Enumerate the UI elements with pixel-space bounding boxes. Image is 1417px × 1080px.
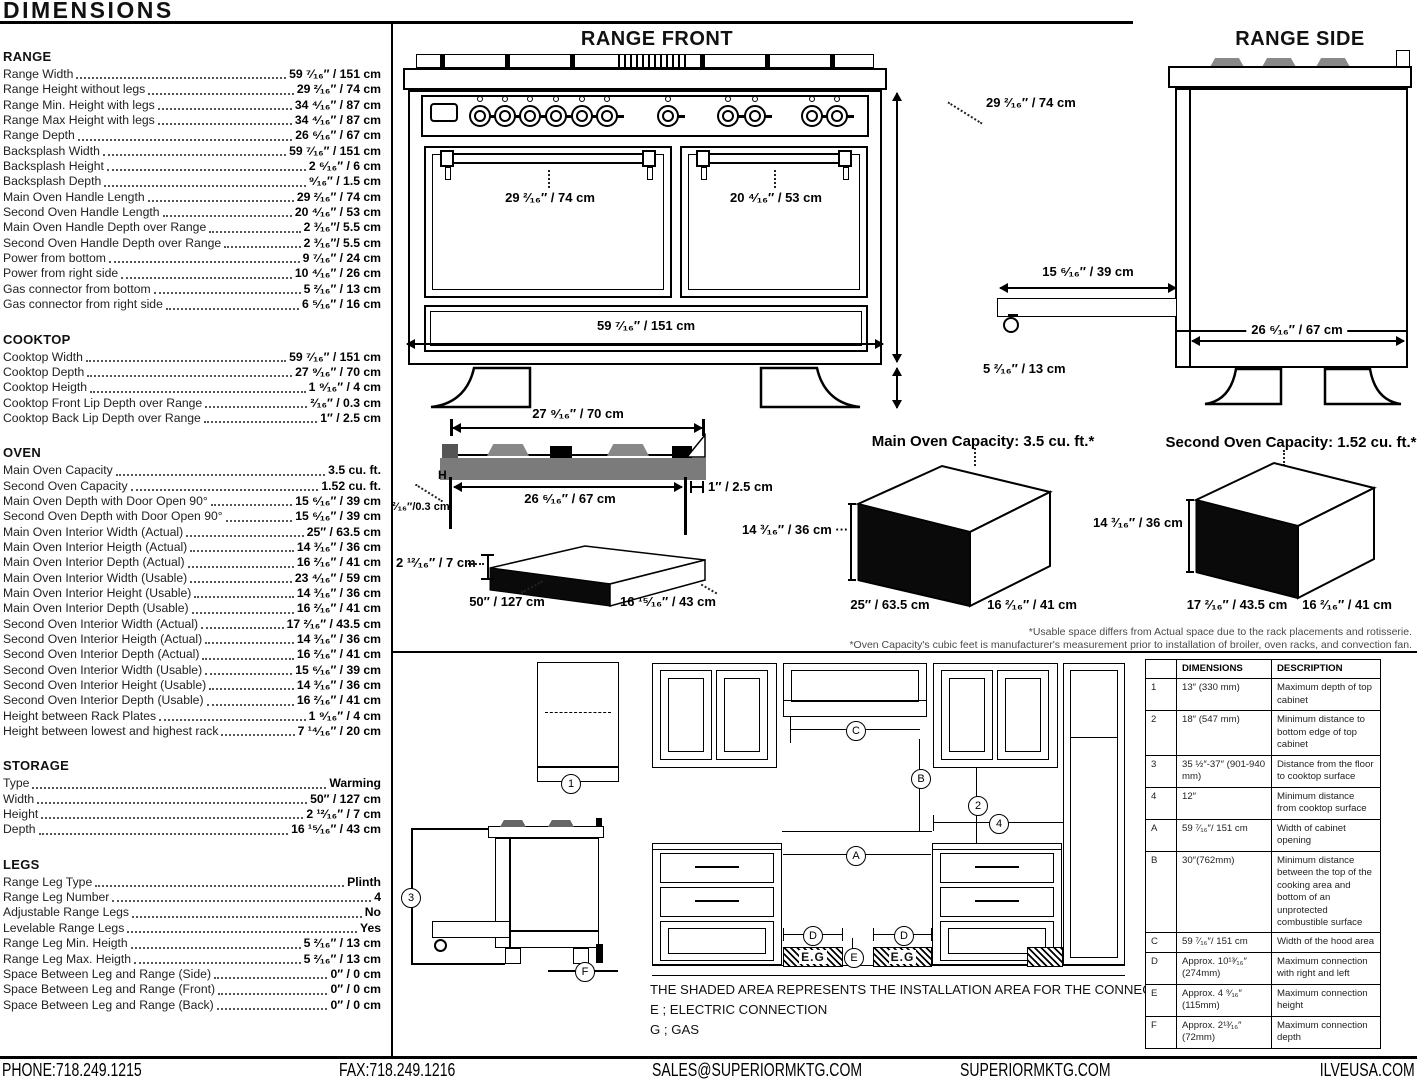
range-height-arrow: [896, 93, 898, 362]
caster-wheel: [434, 939, 447, 952]
spec-value: 1″ / 2.5 cm: [320, 411, 381, 426]
dot-leader: [188, 566, 294, 568]
spec-value: No: [365, 905, 381, 920]
spec-label: Height between Rack Plates: [3, 709, 156, 724]
spec-row: Cooktop Heigth 1 ⁹⁄₁₆″ / 4 cm: [3, 380, 381, 395]
spec-row: Range Min. Height with legs 34 ⁴⁄₁₆″ / 8…: [3, 98, 381, 113]
spec-value: 15 ⁶⁄₁₆″ / 39 cm: [295, 663, 381, 678]
spec-value: 14 ³⁄₁₆″ / 36 cm: [297, 586, 381, 601]
spec-value: 6 ⁵⁄₁₆″ / 16 cm: [302, 297, 381, 312]
table-cell-key: C: [1146, 933, 1177, 952]
spec-row: Main Oven Interior Height (Usable) 14 ³⁄…: [3, 586, 381, 601]
table-cell-description: Maximum depth of top cabinet: [1272, 679, 1381, 711]
range-foot: [758, 365, 863, 409]
installation-note-line: E ; ELECTRIC CONNECTION: [650, 1002, 1196, 1017]
second-oven-depth-label: 16 ²⁄₁₆″ / 41 cm: [1302, 597, 1392, 612]
dot-leader: [218, 993, 327, 995]
dot-leader: [107, 169, 306, 171]
drawer-open-arrow: [1000, 287, 1176, 289]
table-cell-dimension: 12″: [1177, 787, 1272, 819]
dot-leader: [190, 581, 292, 583]
footer-ilve-website[interactable]: ILVEUSA.COM: [1320, 1060, 1415, 1080]
spec-row: Gas connector from right side 6 ⁵⁄₁₆″ / …: [3, 297, 381, 312]
spec-label: Second Oven Capacity: [3, 479, 128, 494]
burner-knob: [469, 105, 491, 127]
range-height-label: 29 ²⁄₁₆″ / 74 cm: [986, 95, 1076, 110]
drawer-height-label: 2 ¹²⁄₁₆″ / 7 cm: [396, 555, 476, 570]
footnote-line: *Oven Capacity's cubic feet is manufactu…: [849, 639, 1412, 652]
installation-note-line: G ; GAS: [650, 1022, 1196, 1037]
spec-value: 50″ / 127 cm: [310, 792, 381, 807]
burner-knob: [571, 105, 593, 127]
spec-row: Space Between Leg and Range (Side) 0″ / …: [3, 967, 381, 982]
spec-section: LEGS Range Leg Type Plinth Range Leg Num…: [3, 857, 381, 1013]
cooktop-ledge: [1168, 66, 1412, 88]
spec-value: 16 ²⁄₁₆″ / 41 cm: [297, 555, 381, 570]
spec-value: 2 ³⁄₁₆″/ 5.5 cm: [304, 220, 381, 235]
spec-row: Main Oven Interior Depth (Actual) 16 ²⁄₁…: [3, 555, 381, 570]
spec-label: Range Max Height with legs: [3, 113, 155, 128]
spec-value: 2 ³⁄₁₆″/ 5.5 cm: [304, 236, 381, 251]
spec-row: Second Oven Depth with Door Open 90° 15 …: [3, 509, 381, 524]
dot-leader: [95, 885, 344, 887]
burner-cap: [607, 444, 649, 456]
table-cell-dimension: 13″ (330 mm): [1177, 679, 1272, 711]
dot-leader: [202, 658, 293, 660]
oven-knob: [826, 105, 848, 127]
spec-value: ⁹⁄₁₆″ / 1.5 cm: [309, 174, 381, 189]
spec-value: 14 ³⁄₁₆″ / 36 cm: [297, 540, 381, 555]
spec-label: Second Oven Interior Width (Usable): [3, 663, 202, 678]
spec-section-heading: LEGS: [3, 857, 381, 872]
dot-leader: [192, 612, 294, 614]
table-header-description: DESCRIPTION: [1272, 660, 1381, 679]
spec-value: 0″ / 0 cm: [330, 982, 381, 997]
spec-row: Height between Rack Plates 1 ⁹⁄₁₆″ / 4 c…: [3, 709, 381, 724]
spec-label: Range Leg Max. Heigth: [3, 952, 131, 967]
spec-label: Main Oven Capacity: [3, 463, 113, 478]
dot-leader: [37, 802, 307, 804]
table-cell-key: B: [1146, 851, 1177, 933]
table-cell-key: E: [1146, 984, 1177, 1016]
spec-row: Backsplash Height 2 ⁶⁄₁₆″ / 6 cm: [3, 159, 381, 174]
spec-value: 16 ²⁄₁₆″ / 41 cm: [297, 601, 381, 616]
table-row: F Approx. 2¹³⁄₁₆″ (72mm) Maximum connect…: [1146, 1016, 1381, 1048]
h-mark: H: [438, 468, 447, 482]
table-cell-description: Maximum connection depth: [1272, 1016, 1381, 1048]
spec-label: Cooktop Heigth: [3, 380, 87, 395]
dot-leader: [116, 474, 325, 476]
table-cell-dimension: Approx. 10¹³⁄₁₆″ (274mm): [1177, 952, 1272, 984]
spec-row: Adjustable Range Legs No: [3, 905, 381, 920]
spec-section: OVEN Main Oven Capacity 3.5 cu. ft. Seco…: [3, 445, 381, 739]
dot-leader: [224, 246, 300, 248]
spec-row: Backsplash Depth ⁹⁄₁₆″ / 1.5 cm: [3, 174, 381, 189]
spec-row: Range Depth 26 ⁶⁄₁₆″ / 67 cm: [3, 128, 381, 143]
second-oven-width-label: 17 ²⁄₁₆″ / 43.5 cm: [1187, 597, 1288, 612]
spec-value: ²⁄₁₆″ / 0.3 cm: [310, 396, 381, 411]
dot-leader: [78, 139, 292, 141]
dot-leader: [103, 154, 286, 156]
spec-row: Backsplash Width 59 ⁷⁄₁₆″ / 151 cm: [3, 144, 381, 159]
table-cell-dimension: 59 ⁷⁄₁₆″/ 151 cm: [1177, 933, 1272, 952]
spec-row: Main Oven Interior Depth (Usable) 16 ²⁄₁…: [3, 601, 381, 616]
dot-leader: [87, 375, 292, 377]
table-cell-dimension: 35 ½″-37″ (901-940 mm): [1177, 755, 1272, 787]
callout-D: D: [803, 926, 823, 946]
leg-height-label: 5 ²⁄₁₆″ / 13 cm: [983, 361, 1066, 376]
spec-section: STORAGE Type Warming Width 50″ / 12: [3, 758, 381, 837]
range-width-arrow: [407, 343, 883, 345]
display-panel: [430, 103, 458, 122]
table-cell-key: 3: [1146, 755, 1177, 787]
spec-row: Height 2 ¹²⁄₁₆″ / 7 cm: [3, 807, 381, 822]
spec-row: Range Leg Number 4: [3, 890, 381, 905]
spec-value: 7 ¹⁴⁄₁₆″ / 20 cm: [298, 724, 381, 739]
footer-fax: FAX:718.249.1216: [339, 1060, 455, 1080]
spec-row: Second Oven Interior Width (Usable) 15 ⁶…: [3, 663, 381, 678]
dot-leader: [221, 734, 294, 736]
spec-row: Range Leg Min. Heigth 5 ²⁄₁₆″ / 13 cm: [3, 936, 381, 951]
spec-value: 4: [374, 890, 381, 905]
table-cell-dimension: Approx. 4 ⁹⁄₁₆″ (115mm): [1177, 984, 1272, 1016]
table-cell-key: 1: [1146, 679, 1177, 711]
spec-label: Backsplash Width: [3, 144, 100, 159]
main-oven-depth-label: 16 ²⁄₁₆″ / 41 cm: [987, 597, 1077, 612]
spec-label: Range Width: [3, 67, 73, 82]
table-row: 1 13″ (330 mm) Maximum depth of top cabi…: [1146, 679, 1381, 711]
spec-row: Second Oven Interior Depth (Actual) 16 ²…: [3, 647, 381, 662]
spec-value: Yes: [360, 921, 381, 936]
table-cell-description: Width of the hood area: [1272, 933, 1381, 952]
dot-leader: [217, 1008, 328, 1010]
spec-value: 1 ⁹⁄₁₆″ / 4 cm: [309, 380, 381, 395]
spec-column: RANGE Range Width 59 ⁷⁄₁₆″ / 151 cm Rang…: [3, 30, 381, 1013]
spec-row: Main Oven Handle Depth over Range 2 ³⁄₁₆…: [3, 220, 381, 235]
dot-leader: [154, 292, 301, 294]
spec-label: Range Leg Min. Heigth: [3, 936, 128, 951]
spec-row: Height between lowest and highest rack 7…: [3, 724, 381, 739]
spec-label: Main Oven Interior Heigth (Actual): [3, 540, 187, 555]
dot-leader: [134, 962, 301, 964]
spec-row: Power from bottom 9 ⁷⁄₁₆″ / 24 cm: [3, 251, 381, 266]
spec-label: Main Oven Depth with Door Open 90°: [3, 494, 208, 509]
spec-section: COOKTOP Cooktop Width 59 ⁷⁄₁₆″ / 151 cm …: [3, 332, 381, 427]
spec-value: 10 ⁴⁄₁₆″ / 26 cm: [295, 266, 381, 281]
spec-label: Second Oven Handle Length: [3, 205, 160, 220]
spec-row: Range Leg Max. Heigth 5 ²⁄₁₆″ / 13 cm: [3, 952, 381, 967]
burner-knob: [494, 105, 516, 127]
dot-leader: [90, 391, 306, 393]
spec-label: Type: [3, 776, 29, 791]
oven-knob: [744, 105, 766, 127]
dimensions-sheet: DIMENSIONS RANGE Range Width 59 ⁷⁄₁₆″ / …: [0, 0, 1417, 1080]
main-handle-length-label: 29 ²⁄₁₆″ / 74 cm: [505, 190, 595, 205]
spec-value: 1 ⁹⁄₁₆″ / 4 cm: [309, 709, 381, 724]
table-header-row: DIMENSIONS DESCRIPTION: [1146, 660, 1381, 679]
spec-label: Height: [3, 807, 38, 822]
spec-label: Backsplash Height: [3, 159, 104, 174]
second-oven-box: [1186, 458, 1381, 600]
dot-leader: [205, 406, 307, 408]
spec-row: Second Oven Interior Width (Actual) 17 ²…: [3, 617, 381, 632]
spec-row: Space Between Leg and Range (Back) 0″ / …: [3, 998, 381, 1013]
range-opening-top: [782, 831, 932, 832]
spec-label: Space Between Leg and Range (Front): [3, 982, 215, 997]
connection-area-side: [1027, 947, 1063, 967]
spec-row: Main Oven Handle Length 29 ²⁄₁₆″ / 74 cm: [3, 190, 381, 205]
spec-label: Second Oven Handle Depth over Range: [3, 236, 221, 251]
table-cell-dimension: 18″ (547 mm): [1177, 711, 1272, 755]
range-width-label: 59 ⁷⁄₁₆″ / 151 cm: [591, 318, 701, 333]
spec-value: 16 ²⁄₁₆″ / 41 cm: [297, 693, 381, 708]
spec-section-heading: OVEN: [3, 445, 381, 460]
spec-row: Cooktop Width 59 ⁷⁄₁₆″ / 151 cm: [3, 350, 381, 365]
spec-label: Second Oven Interior Width (Actual): [3, 617, 198, 632]
spec-label: Main Oven Handle Depth over Range: [3, 220, 206, 235]
vertical-divider: [391, 22, 393, 1057]
second-oven-handle: [702, 153, 846, 164]
oven-knob: [717, 105, 739, 127]
table-cell-key: 2: [1146, 711, 1177, 755]
spec-label: Range Height without legs: [3, 82, 145, 97]
spec-label: Space Between Leg and Range (Side): [3, 967, 211, 982]
callout-4: 4: [989, 814, 1009, 834]
table-cell-key: F: [1146, 1016, 1177, 1048]
table-header-key: [1146, 660, 1177, 679]
table-row: 4 12″ Minimum distance from cooktop surf…: [1146, 787, 1381, 819]
table-cell-description: Width of cabinet opening: [1272, 819, 1381, 851]
spec-label: Power from bottom: [3, 251, 106, 266]
spec-value: Plinth: [347, 875, 381, 890]
spec-value: 59 ⁷⁄₁₆″ / 151 cm: [289, 67, 381, 82]
callout-A: A: [846, 846, 866, 866]
cooktop-slab: [440, 458, 706, 480]
dot-leader: [131, 947, 301, 949]
spec-value: 1.52 cu. ft.: [321, 479, 381, 494]
dot-leader: [205, 642, 294, 644]
dot-leader: [76, 77, 286, 79]
spec-label: Range Depth: [3, 128, 75, 143]
spec-value: 15 ⁶⁄₁₆″ / 39 cm: [295, 494, 381, 509]
table-cell-dimension: 30″(762mm): [1177, 851, 1272, 933]
main-oven-title: Main Oven Capacity: 3.5 cu. ft.*: [872, 433, 1095, 450]
spec-value: 26 ⁶⁄₁₆″ / 67 cm: [295, 128, 381, 143]
dot-leader: [132, 916, 362, 918]
dot-leader: [131, 489, 319, 491]
spec-value: 59 ⁷⁄₁₆″ / 151 cm: [289, 350, 381, 365]
callout-E: E: [844, 948, 864, 968]
spec-value: 3.5 cu. ft.: [328, 463, 381, 478]
spec-section: RANGE Range Width 59 ⁷⁄₁₆″ / 151 cm Rang…: [3, 49, 381, 313]
dot-leader: [112, 900, 371, 902]
burner-knob: [545, 105, 567, 127]
spec-label: Second Oven Interior Depth (Actual): [3, 647, 199, 662]
spec-row: Second Oven Interior Height (Usable) 14 …: [3, 678, 381, 693]
spec-value: 23 ⁴⁄₁₆″ / 59 cm: [295, 571, 381, 586]
griddle-ribs: [618, 55, 690, 67]
table-row: 2 18″ (547 mm) Minimum distance to botto…: [1146, 711, 1381, 755]
spec-row: Main Oven Capacity 3.5 cu. ft.: [3, 463, 381, 478]
range-foot: [1202, 366, 1284, 406]
table-cell-description: Maximum connection with right and left: [1272, 952, 1381, 984]
main-oven-box: [848, 460, 1058, 608]
side-open-drawer: [432, 921, 510, 938]
table-cell-key: D: [1146, 952, 1177, 984]
installation-table: DIMENSIONS DESCRIPTION 1 13″ (330 mm) Ma…: [1145, 659, 1381, 1049]
spec-row: Space Between Leg and Range (Front) 0″ /…: [3, 982, 381, 997]
table-row: C 59 ⁷⁄₁₆″/ 151 cm Width of the hood are…: [1146, 933, 1381, 952]
spec-row: Gas connector from bottom 5 ²⁄₁₆″ / 13 c…: [3, 282, 381, 297]
dot-leader: [214, 977, 327, 979]
spec-label: Width: [3, 792, 34, 807]
spec-label: Second Oven Interior Height (Usable): [3, 678, 206, 693]
spec-label: Levelable Range Legs: [3, 921, 124, 936]
spec-value: 5 ²⁄₁₆″ / 13 cm: [304, 952, 381, 967]
spec-value: 16 ²⁄₁₆″ / 41 cm: [297, 647, 381, 662]
spec-label: Backsplash Depth: [3, 174, 101, 189]
footnote-line: *Usable space differs from Actual space …: [849, 626, 1412, 639]
dot-leader: [39, 833, 289, 835]
dot-leader: [32, 787, 326, 789]
table-row: E Approx. 4 ⁹⁄₁₆″ (115mm) Maximum connec…: [1146, 984, 1381, 1016]
spec-label: Gas connector from right side: [3, 297, 163, 312]
spec-label: Main Oven Interior Width (Actual): [3, 525, 183, 540]
spec-section-heading: COOKTOP: [3, 332, 381, 347]
spec-value: 27 ⁹⁄₁₆″ / 70 cm: [295, 365, 381, 380]
dot-leader: [86, 360, 286, 362]
main-oven-width-label: 25″ / 63.5 cm: [850, 597, 929, 612]
dot-leader: [158, 108, 292, 110]
spec-value: 17 ²⁄₁₆″ / 43.5 cm: [287, 617, 381, 632]
connection-area-label: E.G: [799, 950, 827, 964]
burner-block: [442, 444, 458, 458]
dot-leader: [209, 231, 300, 233]
footer-website[interactable]: SUPERIORMKTG.COM: [960, 1060, 1111, 1080]
spec-row: Cooktop Front Lip Depth over Range ²⁄₁₆″…: [3, 396, 381, 411]
spec-row: Second Oven Interior Depth (Usable) 16 ²…: [3, 693, 381, 708]
spec-value: 2 ¹²⁄₁₆″ / 7 cm: [306, 807, 381, 822]
range-front-title: RANGE FRONT: [581, 28, 733, 51]
cooktop-depth-arrow: [453, 427, 702, 429]
footer-email[interactable]: SALES@SUPERIORMKTG.COM: [652, 1060, 862, 1080]
dot-leader: [204, 421, 317, 423]
caster-wheel: [1003, 317, 1019, 333]
spec-value: 16 ¹⁵⁄₁₆″ / 43 cm: [291, 822, 381, 837]
main-oven-handle: [446, 153, 650, 164]
cooktop-bottom-arrow: [454, 486, 682, 488]
range-side-title: RANGE SIDE: [1235, 28, 1364, 51]
second-oven-title: Second Oven Capacity: 1.52 cu. ft.*: [1166, 434, 1417, 451]
spec-section-heading: STORAGE: [3, 758, 381, 773]
spec-row: Main Oven Depth with Door Open 90° 15 ⁶⁄…: [3, 494, 381, 509]
spec-row: Second Oven Handle Length 20 ⁴⁄₁₆″ / 53 …: [3, 205, 381, 220]
back-lip-label: 1″ / 2.5 cm: [708, 479, 773, 494]
table-cell-dimension: 59 ⁷⁄₁₆″/ 151 cm: [1177, 819, 1272, 851]
spec-label: Range Leg Number: [3, 890, 109, 905]
dot-leader: [104, 185, 305, 187]
range-top-frame: [403, 68, 887, 90]
second-handle-length-label: 20 ⁴⁄₁₆″ / 53 cm: [730, 190, 822, 205]
cooktop-depth-label: 27 ⁹⁄₁₆″ / 70 cm: [532, 406, 624, 421]
spec-label: Main Oven Interior Width (Usable): [3, 571, 187, 586]
spec-value: 34 ⁴⁄₁₆″ / 87 cm: [295, 113, 381, 128]
table-row: B 30″(762mm) Minimum distance between th…: [1146, 851, 1381, 933]
spec-label: Range Min. Height with legs: [3, 98, 155, 113]
dot-leader: [121, 277, 292, 279]
dot-leader: [226, 520, 293, 522]
dot-leader: [148, 93, 294, 95]
spec-row: Range Max Height with legs 34 ⁴⁄₁₆″ / 87…: [3, 113, 381, 128]
table-row: D Approx. 10¹³⁄₁₆″ (274mm) Maximum conne…: [1146, 952, 1381, 984]
spec-row: Second Oven Capacity 1.52 cu. ft.: [3, 479, 381, 494]
spec-row: Power from right side 10 ⁴⁄₁₆″ / 26 cm: [3, 266, 381, 281]
back-lip-profile: [686, 434, 706, 458]
spec-label: Adjustable Range Legs: [3, 905, 129, 920]
spec-label: Cooktop Width: [3, 350, 83, 365]
dot-leader: [201, 627, 284, 629]
dot-leader: [211, 504, 293, 506]
dot-leader: [205, 673, 292, 675]
spec-label: Second Oven Interior Depth (Usable): [3, 693, 204, 708]
main-oven-height-label: 14 ³⁄₁₆″ / 36 cm ···: [742, 522, 848, 537]
burner-knob: [596, 105, 618, 127]
callout-B: B: [911, 769, 931, 789]
spec-row: Main Oven Interior Width (Actual) 25″ / …: [3, 525, 381, 540]
spec-row: Range Leg Type Plinth: [3, 875, 381, 890]
callout-C: C: [846, 721, 866, 741]
spec-value: 29 ²⁄₁₆″ / 74 cm: [297, 82, 381, 97]
spec-value: Warming: [329, 776, 381, 791]
spec-row: Cooktop Back Lip Depth over Range 1″ / 2…: [3, 411, 381, 426]
open-drawer: [997, 298, 1177, 317]
table-row: A 59 ⁷⁄₁₆″/ 151 cm Width of cabinet open…: [1146, 819, 1381, 851]
spec-value: 9 ⁷⁄₁₆″ / 24 cm: [303, 251, 381, 266]
dot-leader: [190, 550, 294, 552]
callout-2: 2: [968, 796, 988, 816]
spec-label: Range Leg Type: [3, 875, 92, 890]
dot-leader: [109, 261, 300, 263]
spec-value: 14 ³⁄₁₆″ / 36 cm: [297, 678, 381, 693]
spec-section-heading: RANGE: [3, 49, 381, 64]
callout-3: 3: [401, 888, 421, 908]
spec-label: Main Oven Handle Length: [3, 190, 145, 205]
spec-label: Height between lowest and highest rack: [3, 724, 218, 739]
second-oven-height-label: 14 ³⁄₁₆″ / 36 cm: [1093, 515, 1183, 530]
dot-leader: [186, 535, 304, 537]
table-row: 3 35 ½″-37″ (901-940 mm) Distance from t…: [1146, 755, 1381, 787]
dot-leader: [207, 704, 294, 706]
spec-row: Range Height without legs 29 ²⁄₁₆″ / 74 …: [3, 82, 381, 97]
dot-leader: [163, 215, 292, 217]
spec-label: Cooktop Depth: [3, 365, 84, 380]
installation-notes: THE SHADED AREA REPRESENTS THE INSTALLAT…: [650, 982, 1196, 1042]
spec-label: Cooktop Front Lip Depth over Range: [3, 396, 202, 411]
spec-value: 0″ / 0 cm: [330, 967, 381, 982]
spec-value: 15 ⁶⁄₁₆″ / 39 cm: [295, 509, 381, 524]
spec-row: Main Oven Interior Heigth (Actual) 14 ³⁄…: [3, 540, 381, 555]
spec-value: 25″ / 63.5 cm: [307, 525, 381, 540]
spec-label: Second Oven Interior Heigth (Actual): [3, 632, 202, 647]
table-cell-description: Minimum distance to bottom edge of top c…: [1272, 711, 1381, 755]
table-cell-description: Minimum distance between the top of the …: [1272, 851, 1381, 933]
spec-value: 14 ³⁄₁₆″ / 36 cm: [297, 632, 381, 647]
spec-row: Second Oven Interior Heigth (Actual) 14 …: [3, 632, 381, 647]
spec-row: Range Width 59 ⁷⁄₁₆″ / 151 cm: [3, 67, 381, 82]
oven-knob: [801, 105, 823, 127]
spec-label: Second Oven Depth with Door Open 90°: [3, 509, 223, 524]
top-cabinet: [537, 662, 619, 782]
